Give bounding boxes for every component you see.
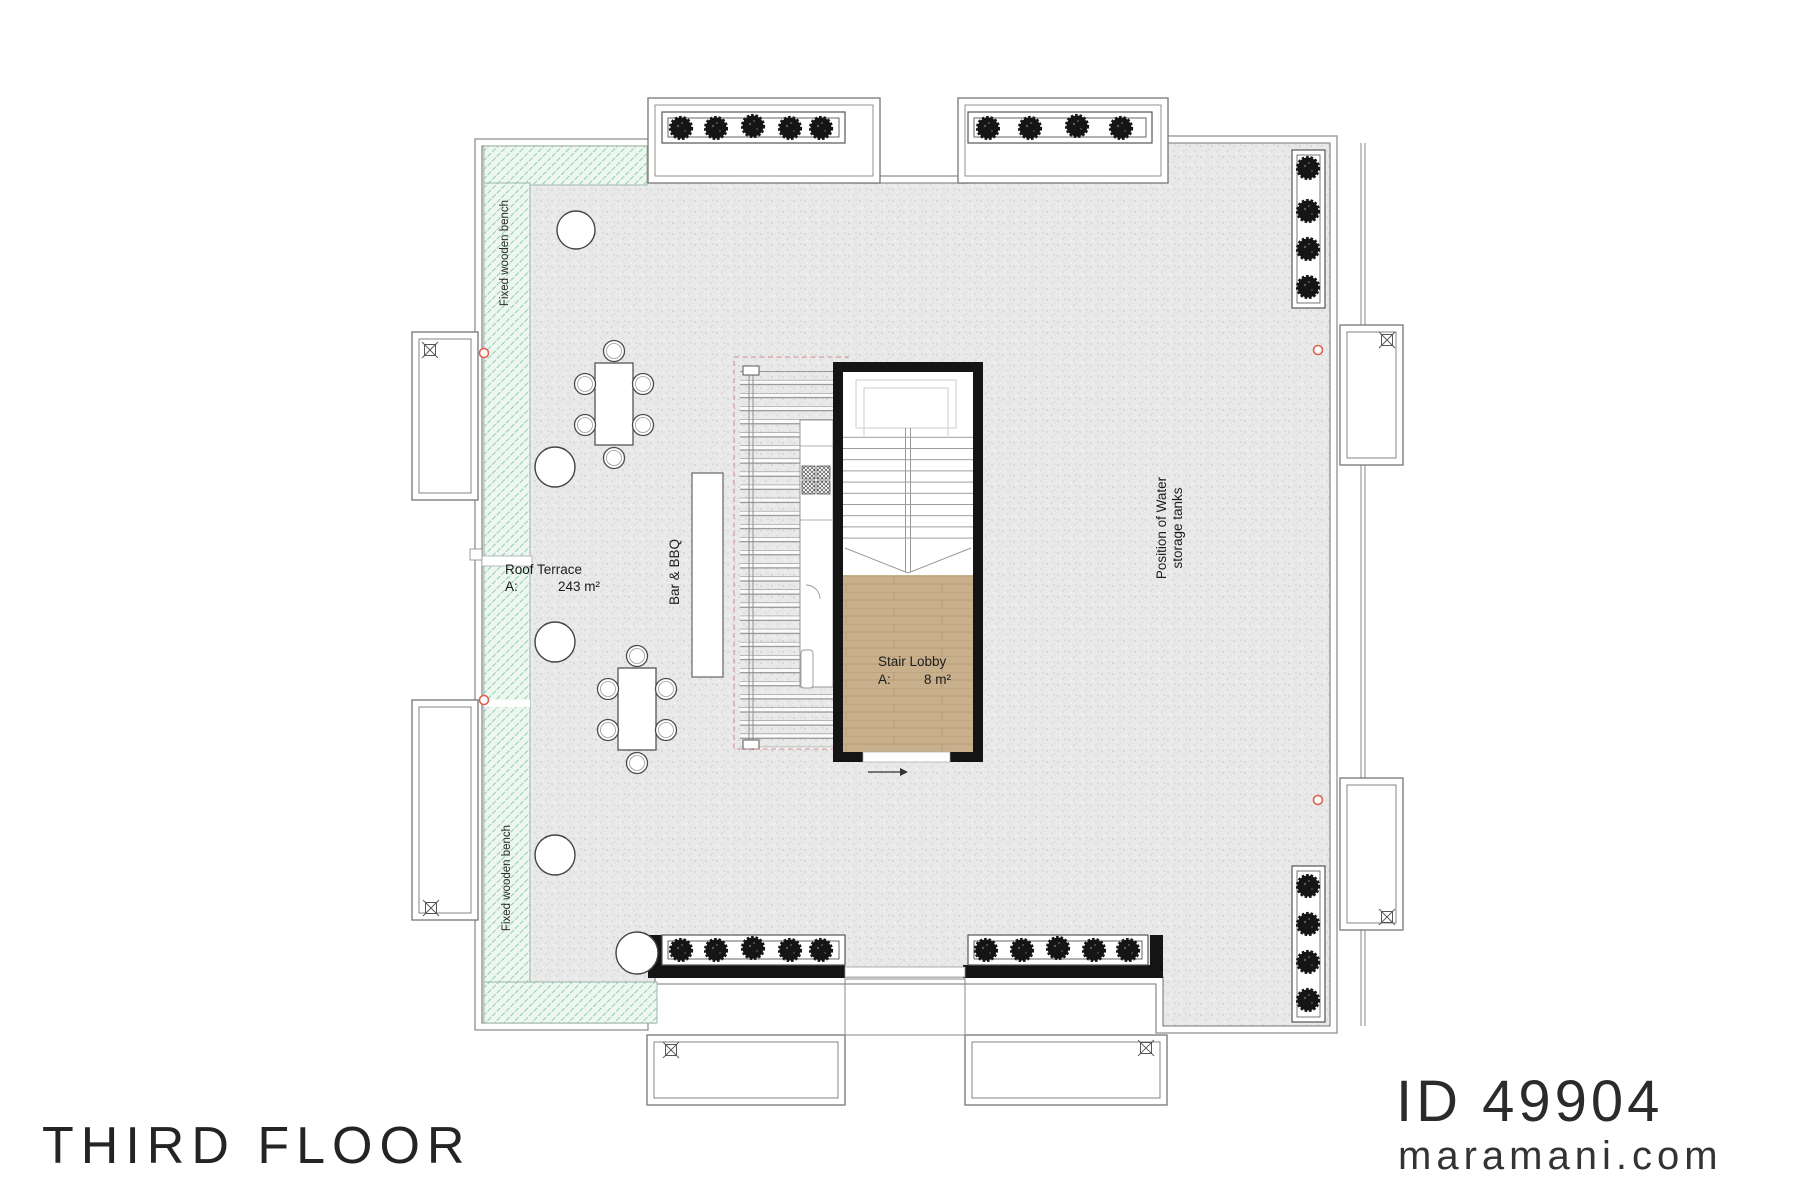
floor-plan-drawing: Roof Terrace A: 243 m² Stair Lobby A: 8 … bbox=[0, 0, 1800, 1200]
column-marker-icon bbox=[1379, 332, 1395, 348]
plant-icon bbox=[780, 118, 801, 139]
plant-icon bbox=[1084, 940, 1105, 961]
plant-icon bbox=[780, 940, 801, 961]
chair-icon bbox=[656, 720, 677, 741]
plant-icon bbox=[706, 118, 727, 139]
chair-icon bbox=[633, 374, 654, 395]
column-marker-icon bbox=[1138, 1040, 1154, 1056]
plant-icon bbox=[1012, 940, 1033, 961]
bar-bbq-label: Bar & BBQ bbox=[667, 539, 682, 605]
roof-terrace-label: Roof Terrace bbox=[505, 562, 582, 577]
plant-icon bbox=[1298, 876, 1319, 897]
left-bay-lower bbox=[412, 700, 478, 920]
stair-treads bbox=[843, 436, 973, 548]
floor-title: THIRD FLOOR bbox=[42, 1116, 471, 1176]
chair-icon bbox=[627, 753, 648, 774]
bottom-bay-left bbox=[647, 1035, 845, 1105]
plant-icon bbox=[1298, 277, 1319, 298]
column-marker-icon bbox=[663, 1042, 679, 1058]
right-planter-lower bbox=[1292, 866, 1325, 1022]
bar-wall-counter bbox=[800, 420, 833, 688]
drain-marker-icon bbox=[1314, 346, 1323, 355]
plant-icon bbox=[1048, 938, 1069, 959]
water-tanks-label-line2: storage tanks bbox=[1170, 487, 1185, 568]
roof-terrace-area-prefix: A: bbox=[505, 579, 518, 594]
left-bay-upper bbox=[412, 332, 478, 500]
stair-lobby-area-value: 8 m² bbox=[924, 672, 952, 687]
dining-table bbox=[618, 668, 656, 750]
water-tanks-label-line1: Position of Water bbox=[1154, 476, 1169, 579]
plant-icon bbox=[1067, 116, 1088, 137]
drain-marker-icon bbox=[480, 349, 489, 358]
bar-island bbox=[692, 473, 723, 677]
plant-icon bbox=[671, 940, 692, 961]
plant-icon bbox=[1298, 239, 1319, 260]
chair-icon bbox=[598, 679, 619, 700]
round-planter bbox=[616, 932, 658, 974]
round-planter bbox=[535, 447, 575, 487]
plant-icon bbox=[1298, 158, 1319, 179]
round-planter bbox=[535, 622, 575, 662]
column-marker-icon bbox=[1379, 909, 1395, 925]
top-planter-bay-left bbox=[648, 98, 880, 183]
plant-icon bbox=[1298, 952, 1319, 973]
plant-icon bbox=[743, 938, 764, 959]
stair-lobby-label: Stair Lobby bbox=[878, 654, 947, 669]
plant-icon bbox=[1118, 940, 1139, 961]
lobby-door-opening bbox=[863, 752, 950, 762]
chair-icon bbox=[575, 415, 596, 436]
right-bay-upper bbox=[1340, 325, 1403, 465]
top-planter-bay-right bbox=[958, 98, 1168, 183]
chair-icon bbox=[627, 646, 648, 667]
stair-tower bbox=[833, 362, 983, 776]
plant-icon bbox=[978, 118, 999, 139]
bottom-bay-right bbox=[965, 1035, 1167, 1105]
right-planter-upper bbox=[1292, 150, 1325, 308]
plant-icon bbox=[1298, 914, 1319, 935]
column-marker-icon bbox=[423, 900, 439, 916]
website-label: maramani.com bbox=[1398, 1134, 1723, 1179]
chair-icon bbox=[656, 679, 677, 700]
plant-icon bbox=[1111, 118, 1132, 139]
plant-icon bbox=[811, 940, 832, 961]
fixed-bench-label-top: Fixed wooden bench bbox=[499, 200, 511, 306]
fixed-bench-label-bottom: Fixed wooden bench bbox=[501, 825, 513, 931]
chair-icon bbox=[604, 341, 625, 362]
drain-marker-icon bbox=[1314, 796, 1323, 805]
plan-id: ID 49904 bbox=[1396, 1068, 1663, 1135]
round-planter bbox=[557, 211, 595, 249]
chair-icon bbox=[633, 415, 654, 436]
bottom-middle-recess bbox=[845, 979, 965, 1035]
floor-plan-page: Roof Terrace A: 243 m² Stair Lobby A: 8 … bbox=[0, 0, 1800, 1200]
drain-marker-icon bbox=[480, 696, 489, 705]
right-bay-lower bbox=[1340, 778, 1403, 930]
roof-terrace-area-value: 243 m² bbox=[558, 579, 601, 594]
chair-icon bbox=[604, 448, 625, 469]
column-marker-icon bbox=[422, 342, 438, 358]
plant-icon bbox=[743, 116, 764, 137]
dining-table bbox=[595, 363, 633, 445]
plant-icon bbox=[1020, 118, 1041, 139]
plant-icon bbox=[976, 940, 997, 961]
plant-icon bbox=[1298, 990, 1319, 1011]
plant-icon bbox=[706, 940, 727, 961]
chair-icon bbox=[598, 720, 619, 741]
stair-lobby-area-prefix: A: bbox=[878, 672, 891, 687]
round-planter bbox=[535, 835, 575, 875]
plant-icon bbox=[671, 118, 692, 139]
chair-icon bbox=[575, 374, 596, 395]
plant-icon bbox=[811, 118, 832, 139]
plant-icon bbox=[1298, 201, 1319, 222]
